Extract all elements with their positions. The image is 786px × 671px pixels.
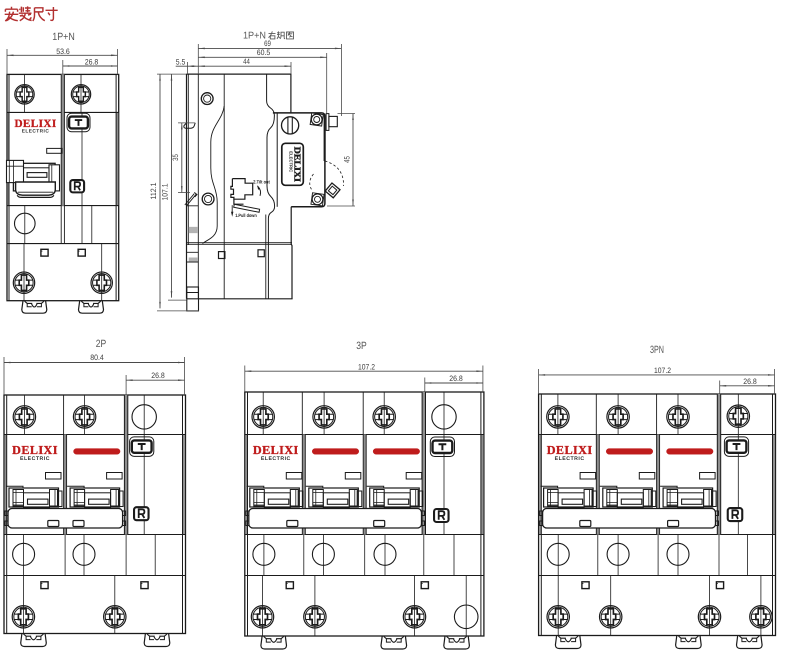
svg-text:45: 45 (342, 156, 351, 163)
svg-text:26.8: 26.8 (743, 377, 757, 386)
svg-text:DELIXI: DELIXI (14, 118, 56, 130)
svg-text:3P: 3P (356, 340, 367, 352)
svg-text:ELECTRIC: ELECTRIC (288, 151, 293, 172)
svg-text:26.8: 26.8 (449, 374, 463, 383)
svg-text:ELECTRIC: ELECTRIC (22, 128, 50, 134)
svg-text:107.2: 107.2 (654, 366, 671, 375)
svg-text:3PN: 3PN (650, 344, 664, 356)
svg-text:44: 44 (243, 57, 250, 66)
svg-text:ELECTRIC: ELECTRIC (20, 456, 50, 462)
svg-text:1P+N: 1P+N (243, 31, 266, 42)
svg-text:35: 35 (171, 154, 180, 161)
svg-text:107.1: 107.1 (161, 184, 170, 201)
svg-text:ELECTRIC: ELECTRIC (555, 456, 585, 462)
svg-text:80.4: 80.4 (90, 353, 104, 362)
svg-text:60.5: 60.5 (257, 48, 271, 57)
svg-text:2P: 2P (96, 338, 107, 350)
svg-text:2.Tilt out: 2.Tilt out (253, 179, 270, 185)
svg-text:26.8: 26.8 (85, 57, 99, 66)
svg-text:26.8: 26.8 (151, 371, 165, 380)
svg-text:112.1: 112.1 (149, 183, 158, 200)
svg-text:1.Pull down: 1.Pull down (235, 213, 257, 219)
svg-text:ELECTRIC: ELECTRIC (261, 456, 291, 462)
svg-text:5.5: 5.5 (176, 57, 186, 66)
svg-text:107.2: 107.2 (358, 362, 375, 371)
svg-text:1P+N: 1P+N (52, 31, 75, 43)
svg-text:53.6: 53.6 (56, 47, 70, 56)
